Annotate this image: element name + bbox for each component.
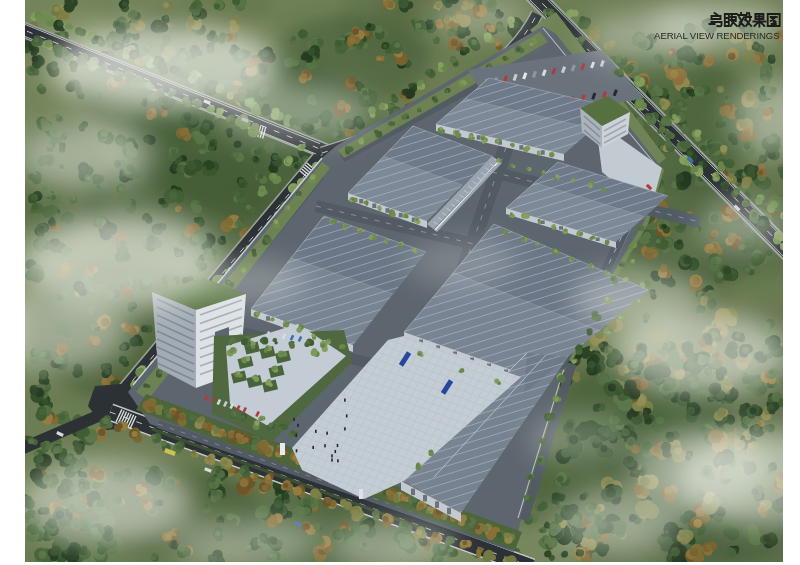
svg-text:AERIAL VIEW RENDERINGS: AERIAL VIEW RENDERINGS xyxy=(654,30,779,41)
